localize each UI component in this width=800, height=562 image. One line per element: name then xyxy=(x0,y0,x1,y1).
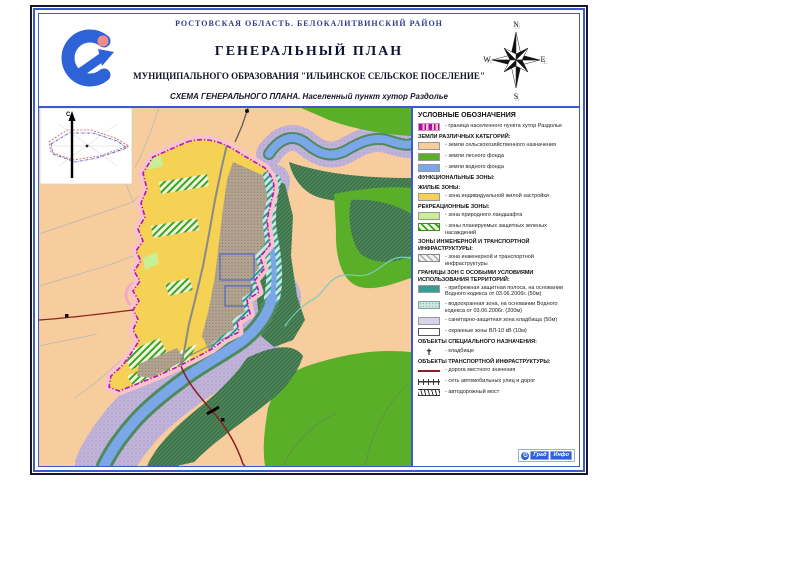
producer-badge-2: Инфо xyxy=(550,451,572,460)
legend-header-special-objects: ОБЪЕКТЫ СПЕЦИАЛЬНОГО НАЗНАЧЕНИЯ: xyxy=(418,339,576,345)
svg-text:N: N xyxy=(513,20,519,29)
legend-item-water-protection-zone: - водоохранная зона, на основании Водног… xyxy=(418,301,577,314)
legend-header-residential-zones: ЖИЛЫЕ ЗОНЫ: xyxy=(418,185,576,191)
organization-logo-icon xyxy=(53,28,117,90)
legend-item-cemetery: ✝ - кладбище xyxy=(418,348,577,356)
plan-sheet: РОСТОВСКАЯ ОБЛАСТЬ. БЕЛОКАЛИТВИНСКИЙ РАЙ… xyxy=(30,5,588,475)
legend-item-forest: - земли лесного фонда xyxy=(418,153,577,161)
legend-header-recreation-zones: РЕКРЕАЦИОННЫЕ ЗОНЫ: xyxy=(418,204,576,210)
legend-item-coastal-strip: - прибрежная защитная полоса, на основан… xyxy=(418,285,577,298)
legend-header-special-condition-zones: ГРАНИЦЫ ЗОН С ОСОБЫМИ УСЛОВИЯМИ ИСПОЛЬЗО… xyxy=(418,270,576,283)
legend-item-agricultural: - земли сельскохозяйственного назначения xyxy=(418,142,577,150)
cemetery-cross-icon: ✝ xyxy=(418,348,440,356)
legend-item-powerline-zone: - охранные зоны ВЛ-10 кВ (10м) xyxy=(418,328,577,336)
street-network-swatch xyxy=(418,378,440,386)
local-road-swatch xyxy=(418,367,440,375)
natural-landscape-swatch xyxy=(418,212,440,220)
powerline-zone-swatch xyxy=(418,328,440,336)
compass-rose-icon: N E S W xyxy=(483,16,549,104)
legend-item-settlement-boundary: - граница населенного пункта хутор Раздо… xyxy=(418,123,577,131)
forest-land-swatch xyxy=(418,153,440,161)
inner-blue-frame: РОСТОВСКАЯ ОБЛАСТЬ. БЕЛОКАЛИТВИНСКИЙ РАЙ… xyxy=(38,13,580,467)
map-canvas: С xyxy=(39,108,413,466)
page: РОСТОВСКАЯ ОБЛАСТЬ. БЕЛОКАЛИТВИНСКИЙ РАЙ… xyxy=(0,0,800,562)
coastal-strip-swatch xyxy=(418,285,440,293)
legend-item-road-bridge: - автодорожный мост xyxy=(418,389,577,396)
water-fund-swatch xyxy=(418,164,440,172)
inset-north-label: С xyxy=(66,112,71,118)
legend-header-transport-objects: ОБЪЕКТЫ ТРАНСПОРТНОЙ ИНФРАСТРУКТУРЫ: xyxy=(418,359,576,365)
title-block: РОСТОВСКАЯ ОБЛАСТЬ. БЕЛОКАЛИТВИНСКИЙ РАЙ… xyxy=(39,14,579,106)
cemetery-sanitary-swatch xyxy=(418,317,440,325)
legend-item-protective-greenery: - зоны планируемых защитных зеленых наса… xyxy=(418,223,577,236)
svg-text:S: S xyxy=(514,92,518,101)
legend-item-water-fund: - земли водного фонда xyxy=(418,164,577,172)
protective-greenery-swatch xyxy=(418,223,440,231)
general-plan-map: С xyxy=(39,108,411,466)
legend-item-natural-landscape: - зона природного ландшафта xyxy=(418,212,577,220)
producer-logo: G Град Инфо xyxy=(518,449,575,462)
individual-housing-swatch xyxy=(418,193,440,201)
svg-text:W: W xyxy=(483,55,491,64)
legend-item-local-road: - дорога местного значения xyxy=(418,367,577,375)
producer-g-icon: G xyxy=(521,452,529,460)
outer-blue-frame: РОСТОВСКАЯ ОБЛАСТЬ. БЕЛОКАЛИТВИНСКИЙ РАЙ… xyxy=(33,8,585,472)
content-row: С УСЛОВНЫЕ ОБОЗНАЧЕНИЯ - граница населен… xyxy=(39,106,579,466)
legend-title: УСЛОВНЫЕ ОБОЗНАЧЕНИЯ xyxy=(418,112,577,119)
infrastructure-zone-swatch xyxy=(418,254,440,262)
water-protection-swatch xyxy=(418,301,440,309)
legend-item-cemetery-sanitary-zone: - санитарно-защитная зона кладбища (50м) xyxy=(418,317,577,325)
legend-item-infrastructure-zone: - зона инженерной и транспортной инфраст… xyxy=(418,254,577,267)
legend-header-infrastructure-zones: ЗОНЫ ИНЖЕНЕРНОЙ И ТРАНСПОРТНОЙ ИНФРАСТРУ… xyxy=(418,239,576,252)
agricultural-land-swatch xyxy=(418,142,440,150)
legend-panel: УСЛОВНЫЕ ОБОЗНАЧЕНИЯ - граница населенно… xyxy=(413,108,579,466)
legend-item-individual-housing: - зона индивидуальной жилой застройки xyxy=(418,193,577,201)
settlement-boundary-swatch xyxy=(418,123,440,131)
producer-badge-1: Град xyxy=(530,451,549,460)
location-inset: С xyxy=(40,108,132,184)
legend-item-street-network: - сеть автомобильных улиц и дорог xyxy=(418,378,577,386)
road-bridge-swatch xyxy=(418,389,440,396)
legend-header-land-categories: ЗЕМЛИ РАЗЛИЧНЫХ КАТЕГОРИЙ: xyxy=(418,134,576,140)
svg-text:E: E xyxy=(541,55,546,64)
legend-header-functional-zones: ФУНКЦИОНАЛЬНЫЕ ЗОНЫ: xyxy=(418,175,576,181)
